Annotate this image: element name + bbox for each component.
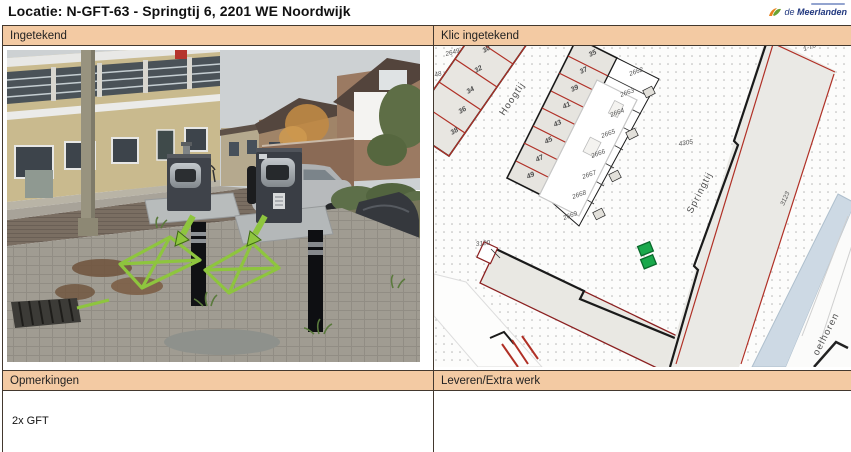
logo-text: de Meerlanden bbox=[784, 7, 847, 17]
lamp-pole bbox=[78, 50, 98, 236]
klic-map: 30 32 34 36 38 35 37 39 41 43 45 47 49 bbox=[434, 46, 851, 367]
site-photo bbox=[7, 50, 420, 362]
header-klic-ingetekend: Klic ingetekend bbox=[434, 26, 851, 46]
red-sign bbox=[175, 50, 187, 59]
puddle bbox=[164, 329, 280, 355]
page-title: Locatie: N-GFT-63 - Springtij 6, 2201 WE… bbox=[8, 3, 351, 19]
remark-text: 2x GFT bbox=[12, 415, 433, 427]
cell-map: 30 32 34 36 38 35 37 39 41 43 45 47 49 bbox=[434, 46, 851, 371]
logo-icon bbox=[768, 6, 782, 18]
header-leveren-extra-werk: Leveren/Extra werk bbox=[434, 371, 851, 391]
utility-box bbox=[25, 170, 53, 198]
location-sheet: { "title": "Locatie: N-GFT-63 - Springti… bbox=[0, 0, 851, 443]
header-ingetekend: Ingetekend bbox=[3, 26, 434, 46]
round-bollard bbox=[247, 166, 257, 204]
logo-meerlanden: de Meerlanden bbox=[761, 1, 847, 23]
cell-photo bbox=[3, 46, 434, 371]
header-opmerkingen: Opmerkingen bbox=[3, 371, 434, 391]
logo-tagline bbox=[811, 3, 845, 5]
square-bollard-right bbox=[308, 230, 323, 332]
waste-container-right bbox=[256, 148, 302, 223]
sheet-table: Ingetekend Klic ingetekend bbox=[2, 25, 851, 452]
